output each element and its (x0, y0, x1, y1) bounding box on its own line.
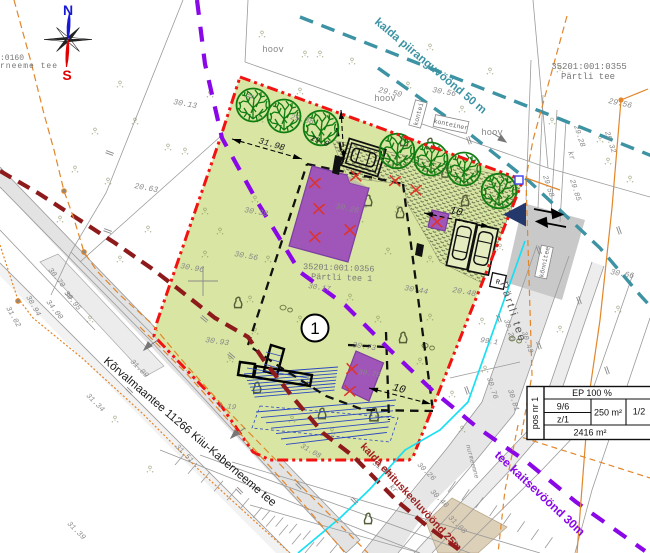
svg-text:z/1: z/1 (557, 415, 569, 425)
svg-text:hoov: hoov (262, 45, 284, 55)
svg-text:Pärtli tee: Pärtli tee (561, 72, 615, 82)
svg-text:1: 1 (310, 319, 319, 338)
svg-text:35201:001:0355: 35201:001:0355 (551, 62, 627, 72)
svg-text:2416 m²: 2416 m² (573, 428, 606, 438)
svg-text:9/6: 9/6 (557, 402, 570, 412)
svg-text:1/2: 1/2 (633, 407, 646, 417)
svg-text:EP 100 %: EP 100 % (572, 388, 612, 398)
svg-text:S: S (62, 67, 71, 83)
svg-text:250 m²: 250 m² (594, 408, 622, 418)
svg-text:hoov: hoov (481, 128, 503, 138)
svg-text:Pärtli tee 1: Pärtli tee 1 (311, 272, 373, 284)
svg-text:N: N (63, 2, 73, 18)
svg-text:rneeme tee: rneeme tee (0, 62, 58, 71)
svg-text:pos nr 1: pos nr 1 (530, 397, 540, 430)
